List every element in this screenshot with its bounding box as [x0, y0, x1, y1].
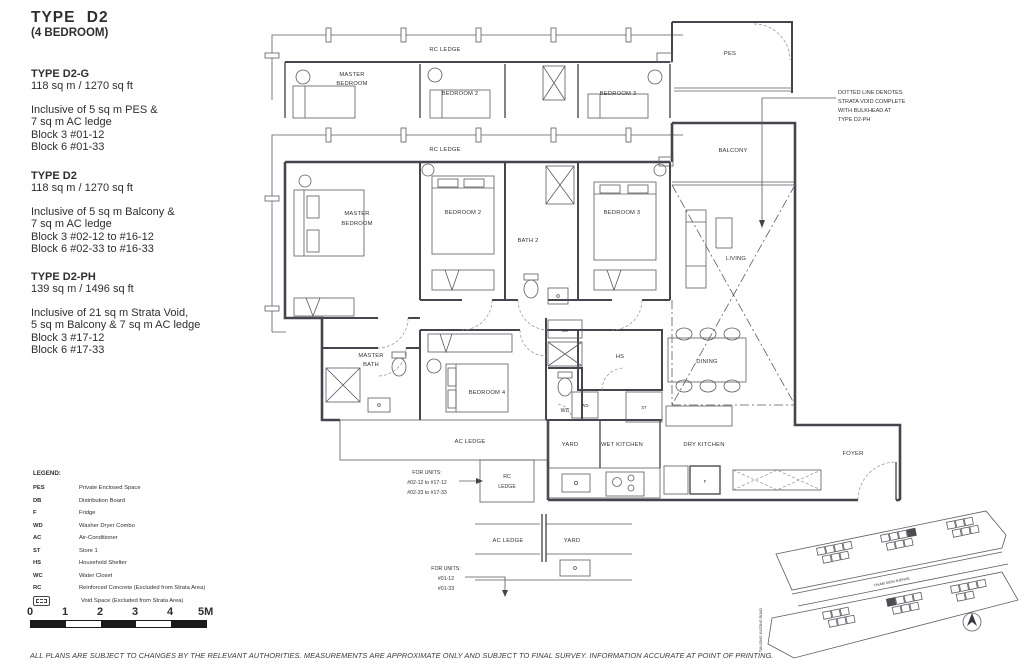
for-units-line: FOR UNITS: — [412, 470, 441, 476]
room-label-bedroom2: BEDROOM 2 — [442, 91, 479, 97]
room-label-master-1: MASTER — [339, 72, 364, 78]
bedroom4-furniture — [427, 334, 512, 412]
strata-void-dashes — [672, 185, 795, 405]
wc-fixtures — [558, 372, 572, 396]
label-wd: WD — [582, 403, 589, 408]
room-label-yard: YARD — [562, 442, 578, 448]
room-label-dining: DINING — [696, 359, 718, 365]
strata-void-note: DOTTED LINE DENOTES STRATA VOID COMPLETE… — [759, 90, 906, 228]
for-units-lower: FOR UNITS: #01-12 #01-33 — [431, 566, 508, 597]
for-units-line: FOR UNITS: — [431, 566, 460, 572]
room-label-rc-ledge: RC LEDGE — [429, 47, 460, 53]
room-label-bedroom3: BEDROOM 3 — [604, 210, 641, 216]
label-rc: RC — [503, 474, 511, 480]
master-bath-fixtures — [326, 352, 406, 412]
label-fridge: F — [704, 479, 707, 484]
label-db: DB — [562, 328, 568, 333]
note-line: STRATA VOID COMPLETE — [838, 99, 906, 105]
room-label-ac-ledge: AC LEDGE — [455, 439, 486, 445]
label-rc-ledge: LEDGE — [498, 484, 516, 490]
for-units-line: #01-33 — [438, 586, 454, 592]
for-units-line: #02-12 to #17-12 — [407, 480, 447, 486]
site-map-road-label: THIAM SIEW AVENUE — [873, 576, 910, 587]
room-label-master-2: BEDROOM — [336, 81, 367, 87]
upper-ghost-plan: RC LEDGE PES MASTER BEDROOM BEDROOM 2 BE… — [265, 22, 792, 118]
floor-plan-sheet: TYPE D2 (4 BEDROOM) TYPE D2-G 118 sq m /… — [0, 0, 1024, 668]
note-line: WITH BULKHEAD AT — [838, 108, 892, 114]
room-label-foyer: FOYER — [843, 451, 864, 457]
room-label-master-bath-2: BATH — [363, 362, 379, 368]
room-label-living: LIVING — [726, 256, 746, 262]
note-line: TYPE D2-PH — [838, 117, 870, 123]
bedroom3-furniture — [594, 164, 666, 290]
bedroom2-furniture — [422, 164, 494, 290]
for-units-upper: FOR UNITS: #02-12 to #17-12 #02-33 to #1… — [407, 470, 483, 496]
site-map-block-cluster — [947, 516, 980, 538]
room-label-balcony: BALCONY — [718, 148, 747, 154]
room-label-bedroom3: BEDROOM 3 — [600, 91, 637, 97]
room-label-ac-ledge: AC LEDGE — [493, 538, 524, 544]
master-bedroom-furniture — [294, 175, 364, 316]
kitchen-fixtures — [548, 466, 821, 498]
room-label-yard: YARD — [564, 538, 580, 544]
room-label-master-bath-1: MASTER — [358, 353, 383, 359]
site-map-side-road-label: TANJONG KATONG ROAD — [759, 608, 763, 653]
site-map-block-cluster — [887, 592, 924, 615]
site-map-block-cluster — [951, 579, 988, 602]
room-label-wc: WC — [561, 408, 570, 414]
dining-furniture — [666, 328, 746, 426]
north-compass-icon — [963, 613, 981, 631]
room-label-pes: PES — [724, 51, 736, 57]
site-map: THIAM SIEW AVENUE TANJONG KATONG ROAD — [759, 511, 1018, 658]
room-label-bath2: BATH 2 — [517, 238, 538, 244]
room-label-bedroom4: BEDROOM 4 — [469, 390, 506, 396]
ground-floor-fragment: AC LEDGE YARD FOR UNITS: #01-12 #01-33 — [431, 514, 632, 597]
room-label-master-2: BEDROOM — [341, 221, 372, 227]
room-label-rc-ledge: RC LEDGE — [429, 147, 460, 153]
label-st: ST — [641, 405, 647, 410]
room-label-bedroom2: BEDROOM 2 — [445, 210, 482, 216]
room-label-dry-kitchen: DRY KITCHEN — [683, 442, 724, 448]
for-units-line: #02-33 to #17-33 — [407, 490, 447, 496]
for-units-line: #01-12 — [438, 576, 454, 582]
main-floor-plan: RC LEDGE — [265, 90, 906, 502]
site-map-block-cluster — [823, 606, 856, 628]
room-label-hs: HS — [616, 354, 624, 360]
floor-plan-drawing: RC LEDGE PES MASTER BEDROOM BEDROOM 2 BE… — [0, 0, 1024, 668]
room-label-wet-kitchen: WET KITCHEN — [601, 442, 643, 448]
bath2-fixtures — [524, 166, 574, 304]
room-label-master-1: MASTER — [344, 211, 369, 217]
note-line: DOTTED LINE DENOTES — [838, 90, 903, 96]
